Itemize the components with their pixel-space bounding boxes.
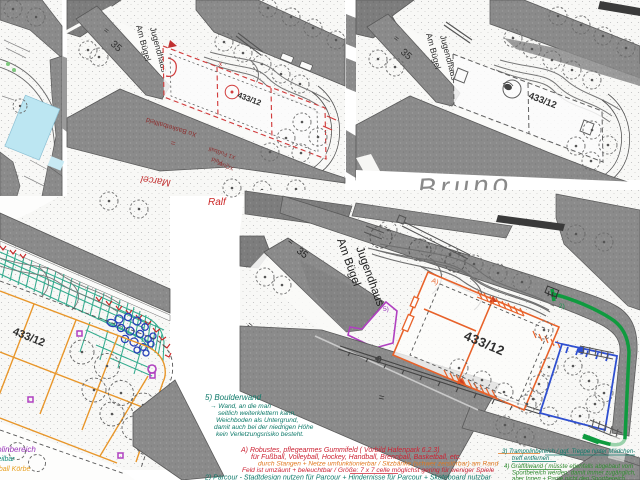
- svg-text:Weichboden als Untergrund,: Weichboden als Untergrund,: [216, 417, 298, 424]
- svg-text:damit auch bei der niedrigen H: damit auch bei der niedrigen Höhe: [214, 424, 314, 431]
- svg-text:x: x: [219, 62, 222, 68]
- svg-text:Feld ist umzäunt + beleuchtbar: Feld ist umzäunt + beleuchtbar / Größe: …: [242, 467, 495, 474]
- svg-text:4) Graffitiwand ( müsste ebenf: 4) Graffitiwand ( müsste ebenfalls abgeb…: [504, 464, 633, 470]
- svg-text:2) Parcour - Stadtdesign nutze: 2) Parcour - Stadtdesign nutzen für Parc…: [204, 475, 492, 480]
- svg-text:2): 2): [559, 303, 565, 310]
- svg-text:→ Wand, an die man: → Wand, an die man: [210, 403, 271, 410]
- svg-text:sketball Körbe: sketball Körbe: [0, 466, 30, 473]
- svg-text:5) Boulderwand: 5) Boulderwand: [205, 393, 262, 402]
- svg-text:treff entfernen: treff entfernen: [512, 456, 550, 462]
- svg-text:seitlich weiterklettern kann,: seitlich weiterklettern kann,: [218, 410, 296, 417]
- svg-text:aber Innen + Partie nicht den: aber Innen + Partie nicht den Sportberei…: [512, 477, 626, 480]
- svg-text:~polinbereich: ~polinbereich: [0, 445, 36, 454]
- svg-text:l teilbar: l teilbar: [0, 456, 15, 463]
- svg-text:3) Trampolinbereich / ggf. Tre: 3) Trampolinbereich / ggf. Treppe hinter…: [502, 449, 635, 455]
- svg-text:kein Verletzungsrisiko besteht: kein Verletzungsrisiko besteht.: [216, 431, 304, 438]
- svg-text:5): 5): [383, 306, 389, 313]
- svg-text:A) Robustes, pflegearmes Gummi: A) Robustes, pflegearmes Gummifeld ( Vor…: [240, 447, 440, 454]
- svg-text:Ralf: Ralf: [208, 197, 227, 208]
